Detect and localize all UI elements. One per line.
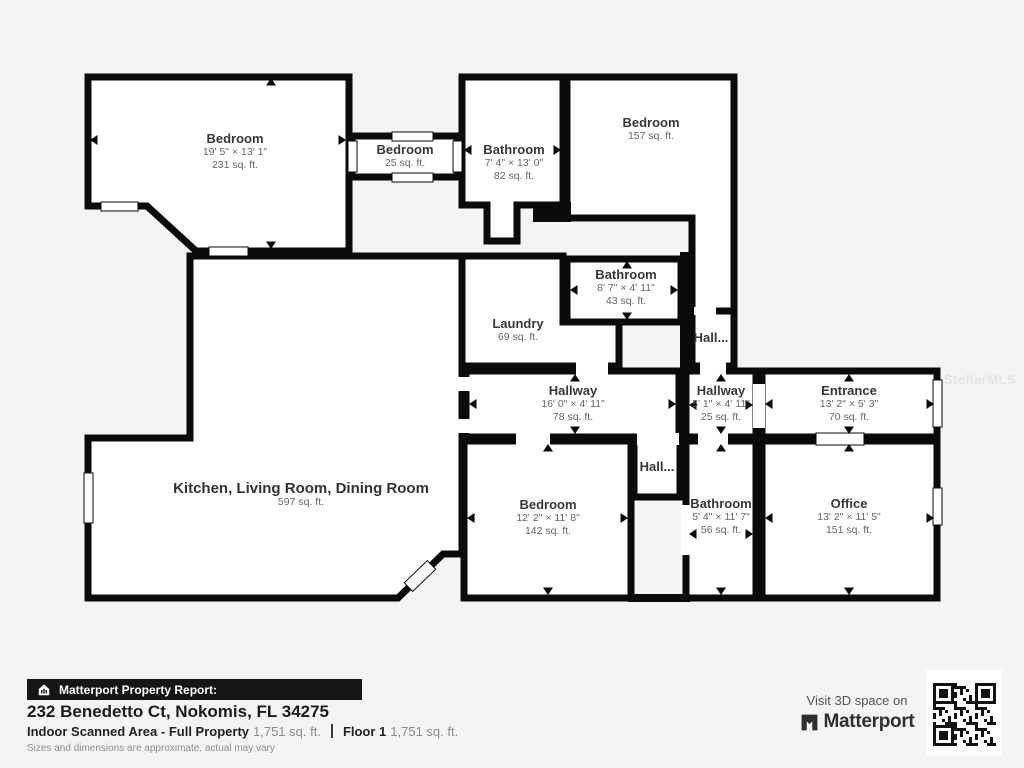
room-label-bedroom-231: Bedroom 19' 5" × 13' 1" 231 sq. ft. [203, 131, 267, 172]
report-ribbon: Matterport Property Report: [27, 679, 362, 700]
watermark: StellarMLS [944, 372, 1016, 387]
report-label: Matterport Property Report: [59, 683, 217, 697]
visit-3d-block: Visit 3D space on Matterport [792, 693, 922, 733]
room-label-bedroom-142: Bedroom 12' 2" × 11' 8" 142 sq. ft. [516, 497, 580, 538]
room-label-hallway-25: Hallway 5' 1" × 4' 11" 25 sq. ft. [692, 383, 750, 424]
room-label-entrance: Entrance 13' 2" × 5' 3" 70 sq. ft. [820, 383, 878, 424]
matterport-report-icon [37, 683, 51, 697]
room-label-hallway-78: Hallway 16' 0" × 4' 11" 78 sq. ft. [541, 383, 605, 424]
qr-code [926, 670, 1002, 756]
scanned-area-value: 1,751 sq. ft. [253, 724, 321, 739]
disclaimer-text: Sizes and dimensions are approximate, ac… [27, 743, 275, 754]
floor-label: Floor 1 [343, 724, 386, 739]
matterport-wordmark: Matterport [824, 711, 915, 733]
room-label-office: Office 13' 2" × 11' 5" 151 sq. ft. [817, 496, 881, 537]
room-label-bedroom-25: Bedroom 25 sq. ft. [376, 142, 433, 170]
room-shape-kitchen [88, 256, 462, 598]
floor-value: 1,751 sq. ft. [390, 724, 458, 739]
visit-3d-text: Visit 3D space on [792, 693, 922, 708]
room-label-hall-bottom: Hall... [640, 459, 675, 474]
property-address: 232 Benedetto Ct, Nokomis, FL 34275 [27, 702, 329, 722]
room-label-bedroom-157: Bedroom 157 sq. ft. [622, 115, 679, 143]
room-label-bathroom-56: Bathroom 5' 4" × 11' 7" 56 sq. ft. [690, 496, 751, 537]
scanned-area-line: Indoor Scanned Area - Full Property1,751… [27, 724, 458, 739]
room-label-bathroom-43: Bathroom 8' 7" × 4' 11" 43 sq. ft. [595, 267, 656, 308]
matterport-logo-icon [800, 713, 819, 732]
room-label-kitchen-living-dining: Kitchen, Living Room, Dining Room 597 sq… [173, 481, 429, 509]
scanned-area-label: Indoor Scanned Area - Full Property [27, 724, 249, 739]
room-label-hall-top: Hall... [694, 330, 729, 345]
room-label-laundry: Laundry 69 sq. ft. [492, 316, 543, 344]
room-label-bathroom-82: Bathroom 7' 4" × 13' 0" 82 sq. ft. [483, 142, 544, 183]
floor-plan-page: Bedroom 19' 5" × 13' 1" 231 sq. ft. Bedr… [0, 0, 1024, 768]
divider [331, 724, 333, 738]
